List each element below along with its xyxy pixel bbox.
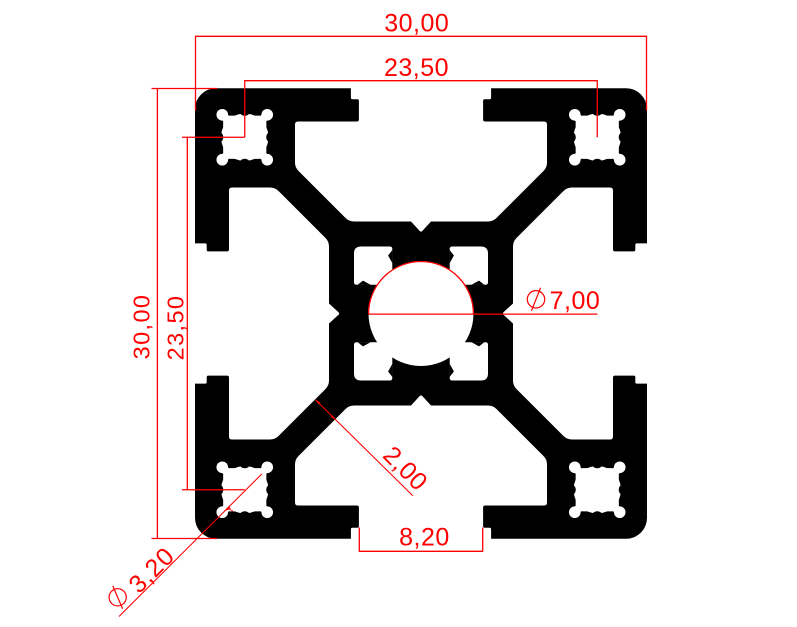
svg-text:30,00: 30,00 — [129, 294, 155, 360]
svg-text:23,50: 23,50 — [163, 295, 189, 361]
svg-text:23,50: 23,50 — [384, 54, 449, 82]
svg-text:7,00: 7,00 — [550, 287, 601, 315]
svg-text:30,00: 30,00 — [384, 10, 449, 38]
svg-text:8,20: 8,20 — [399, 524, 450, 552]
